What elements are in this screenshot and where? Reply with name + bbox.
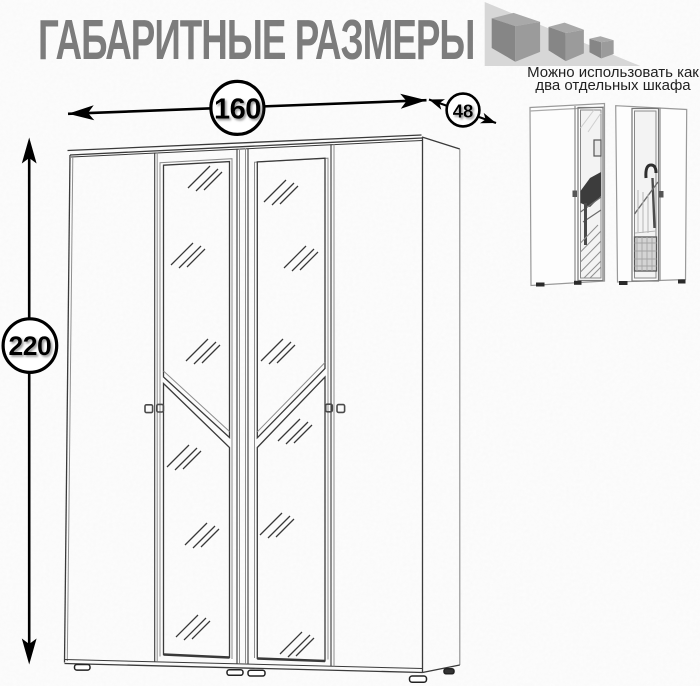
svg-text:220: 220 xyxy=(9,331,52,361)
svg-text:160: 160 xyxy=(214,94,261,126)
svg-text:48: 48 xyxy=(453,101,474,122)
